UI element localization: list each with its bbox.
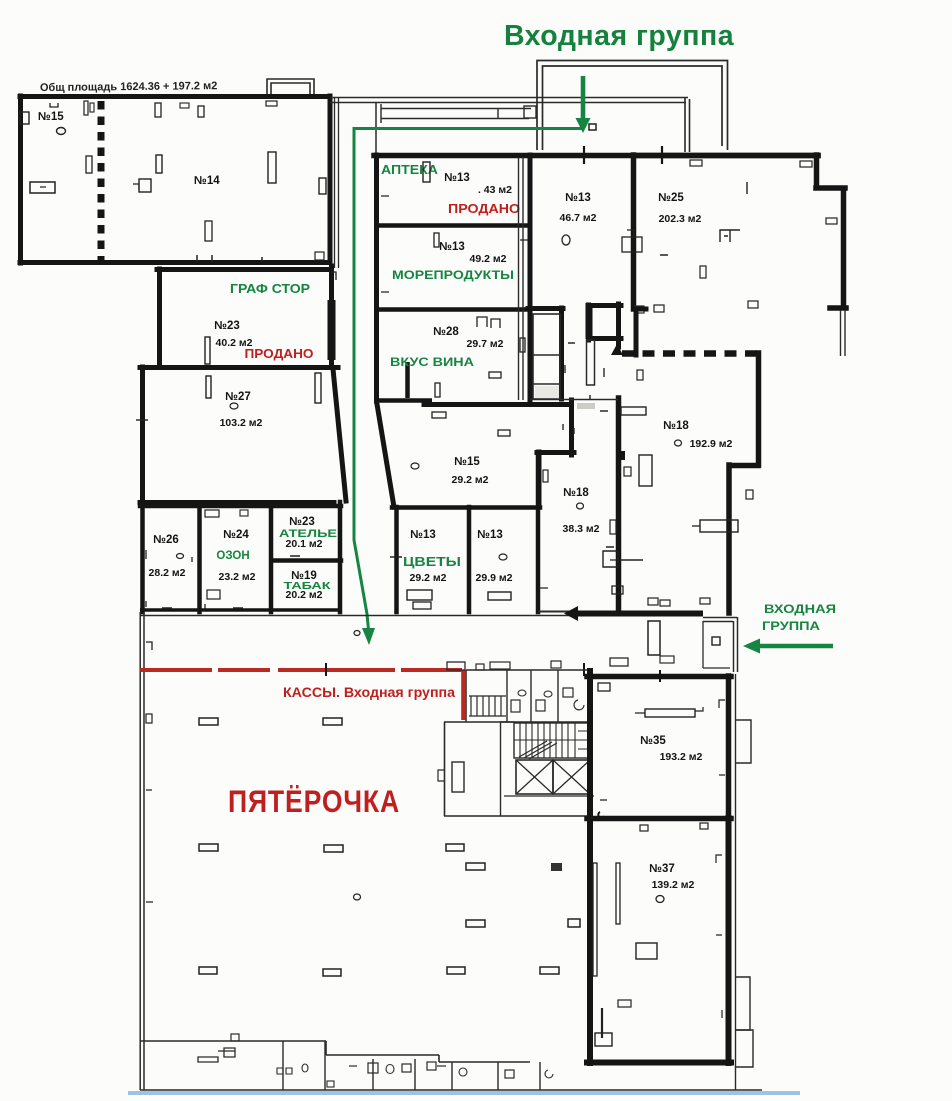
- svg-text:49.2 м2: 49.2 м2: [470, 253, 507, 265]
- svg-text:№27: №27: [225, 391, 251, 403]
- svg-text:№13: №13: [565, 192, 591, 204]
- svg-text:Входная группа: Входная группа: [504, 20, 735, 52]
- svg-text:ПРОДАНО: ПРОДАНО: [245, 347, 314, 361]
- svg-text:192.9 м2: 192.9 м2: [690, 438, 733, 450]
- svg-text:29.2 м2: 29.2 м2: [410, 572, 447, 584]
- svg-text:№15: №15: [38, 111, 64, 123]
- svg-text:№18: №18: [663, 420, 689, 432]
- svg-text:ГРАФ СТОР: ГРАФ СТОР: [230, 281, 310, 296]
- svg-text:№25: №25: [658, 192, 684, 204]
- svg-text:29.7 м2: 29.7 м2: [467, 338, 504, 350]
- svg-text:№13: №13: [439, 241, 465, 253]
- svg-text:29.9 м2: 29.9 м2: [476, 572, 513, 584]
- svg-text:38.3 м2: 38.3 м2: [563, 523, 600, 535]
- svg-text:20.1 м2: 20.1 м2: [286, 538, 323, 550]
- svg-text:20.2 м2: 20.2 м2: [286, 589, 323, 601]
- svg-text:Общ площадь 1624.36 + 197.2 м2: Общ площадь 1624.36 + 197.2 м2: [40, 80, 217, 94]
- svg-text:. 43 м2: . 43 м2: [478, 184, 512, 196]
- svg-text:ОЗОН: ОЗОН: [216, 550, 249, 562]
- svg-text:103.2 м2: 103.2 м2: [220, 417, 263, 429]
- svg-text:ВХОДНАЯ: ВХОДНАЯ: [764, 602, 836, 616]
- svg-text:№14: №14: [194, 175, 220, 187]
- svg-text:46.7 м2: 46.7 м2: [560, 212, 597, 224]
- svg-text:МОРЕПРОДУКТЫ: МОРЕПРОДУКТЫ: [392, 268, 514, 282]
- svg-text:КАССЫ. Входная группа: КАССЫ. Входная группа: [283, 685, 456, 700]
- svg-text:ПЯТЁРОЧКА: ПЯТЁРОЧКА: [228, 783, 400, 819]
- svg-text:ЦВЕТЫ: ЦВЕТЫ: [403, 555, 461, 569]
- svg-text:23.2 м2: 23.2 м2: [219, 571, 256, 583]
- svg-text:№15: №15: [454, 456, 480, 468]
- svg-text:29.2 м2: 29.2 м2: [452, 474, 489, 486]
- svg-text:№18: №18: [563, 487, 589, 499]
- svg-text:139.2 м2: 139.2 м2: [652, 879, 695, 891]
- svg-text:202.3 м2: 202.3 м2: [659, 213, 702, 225]
- svg-text:ВКУС ВИНА: ВКУС ВИНА: [390, 355, 474, 369]
- svg-text:№35: №35: [640, 735, 666, 747]
- svg-text:ГРУППА: ГРУППА: [762, 619, 820, 633]
- svg-text:№13: №13: [444, 172, 470, 184]
- svg-text:№28: №28: [433, 326, 459, 338]
- svg-text:№23: №23: [214, 320, 240, 332]
- svg-text:№13: №13: [477, 529, 503, 541]
- svg-text:193.2 м2: 193.2 м2: [660, 751, 703, 763]
- svg-text:№23: №23: [289, 516, 315, 528]
- svg-text:№24: №24: [223, 529, 249, 541]
- svg-text:№13: №13: [410, 529, 436, 541]
- svg-text:№26: №26: [153, 534, 179, 546]
- svg-text:28.2 м2: 28.2 м2: [149, 567, 186, 579]
- svg-text:№37: №37: [649, 863, 675, 875]
- svg-text:ПРОДАНО: ПРОДАНО: [448, 201, 520, 216]
